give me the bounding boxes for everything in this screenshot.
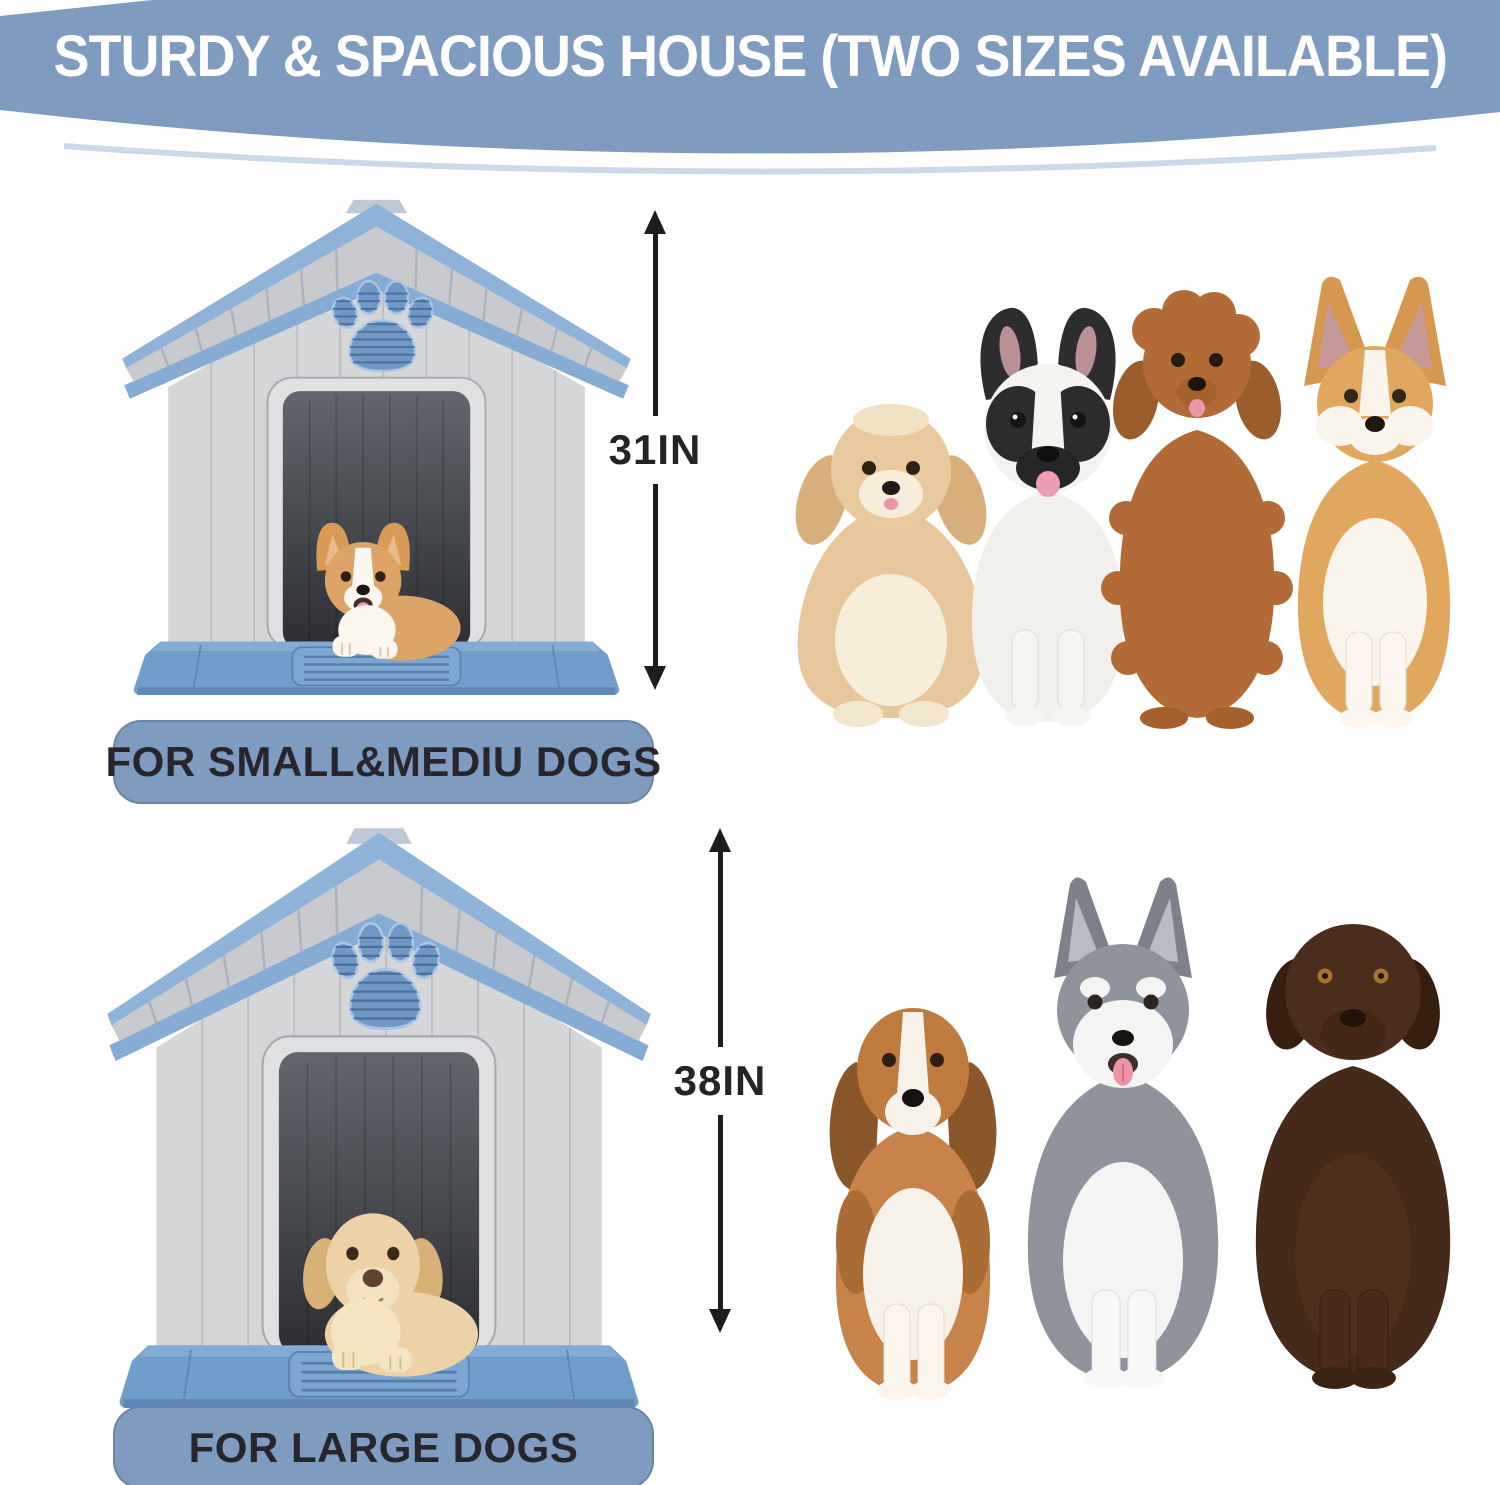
arrow-up-icon [709, 828, 731, 852]
small-doghouse-illustration [108, 198, 645, 695]
product-infographic: STURDY & SPACIOUS HOUSE (TWO SIZES AVAIL… [0, 0, 1500, 1485]
corgi-dog-illustration [1252, 268, 1498, 730]
large-height-value: 38IN [674, 1047, 767, 1115]
large-size-label: FOR LARGE DOGS [113, 1406, 654, 1485]
small-size-label: FOR SMALL&MEDIU DOGS [113, 720, 654, 804]
small-house-height-dimension: 31IN [600, 210, 710, 690]
large-house-height-dimension: 38IN [660, 828, 780, 1333]
small-height-value: 31IN [609, 416, 702, 484]
arrow-down-icon [644, 666, 666, 690]
page-title: STURDY & SPACIOUS HOUSE (TWO SIZES AVAIL… [0, 24, 1500, 90]
arrow-up-icon [644, 210, 666, 234]
large-doghouse-illustration [93, 826, 665, 1408]
chocolate-labrador-illustration [1208, 852, 1500, 1405]
arrow-down-icon [709, 1309, 731, 1333]
